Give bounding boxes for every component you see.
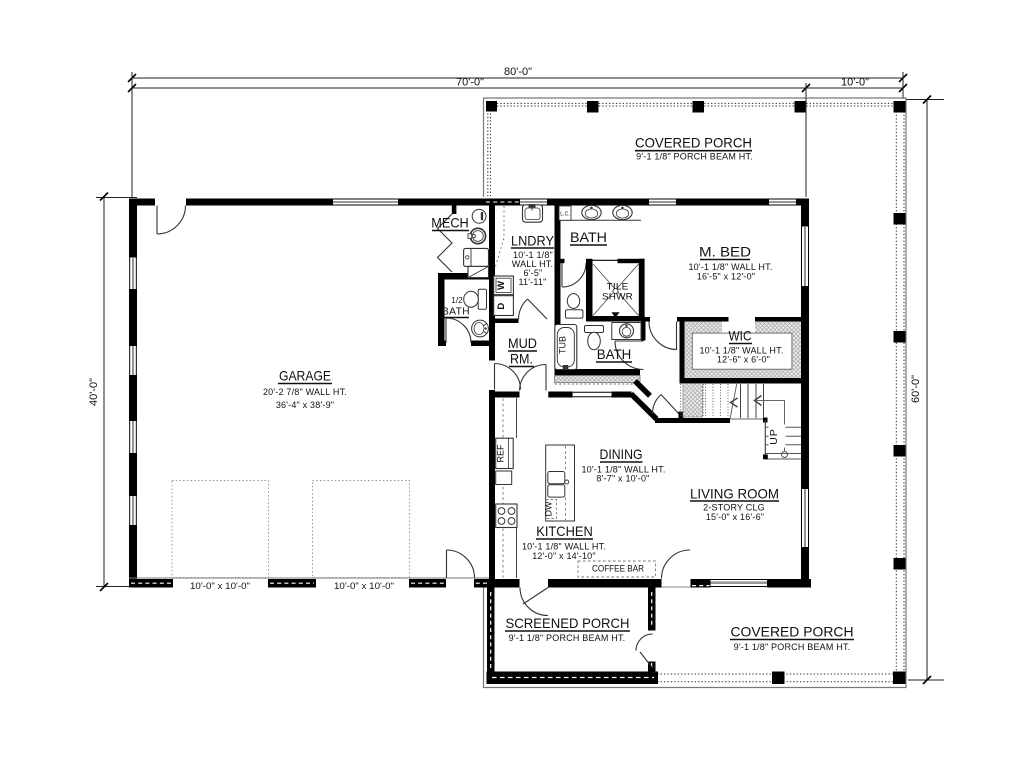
svg-text:TUB: TUB — [558, 336, 568, 354]
svg-text:2-STORY CLG: 2-STORY CLG — [703, 503, 765, 513]
svg-text:WIC: WIC — [729, 328, 752, 344]
svg-text:D: D — [496, 303, 507, 310]
svg-text:DW: DW — [544, 501, 554, 516]
svg-text:M. BED: M. BED — [699, 244, 751, 260]
svg-text:80'-0": 80'-0" — [504, 66, 532, 78]
svg-text:1/2: 1/2 — [451, 296, 463, 305]
svg-text:BATH: BATH — [597, 346, 632, 362]
svg-text:15'-0" x 16'-6": 15'-0" x 16'-6" — [706, 512, 764, 522]
svg-text:MECH: MECH — [431, 215, 469, 231]
svg-text:12'-0" x 14'-10": 12'-0" x 14'-10" — [532, 551, 596, 561]
svg-text:LNDRY: LNDRY — [511, 233, 555, 249]
svg-text:DINING: DINING — [600, 446, 643, 462]
svg-text:12'-6" x 6'-0": 12'-6" x 6'-0" — [717, 355, 770, 365]
svg-text:GARAGE: GARAGE — [279, 368, 331, 384]
svg-text:60'-0": 60'-0" — [910, 375, 922, 403]
svg-text:70'-0": 70'-0" — [456, 77, 484, 89]
svg-text:8'-7" x 10'-0": 8'-7" x 10'-0" — [596, 474, 649, 484]
svg-text:SCREENED PORCH: SCREENED PORCH — [506, 615, 630, 631]
svg-text:20'-2 7/8" WALL HT.: 20'-2 7/8" WALL HT. — [263, 387, 347, 397]
svg-text:10'-1 1/8" WALL HT.: 10'-1 1/8" WALL HT. — [688, 262, 772, 272]
svg-text:9'-1 1/8" PORCH BEAM HT.: 9'-1 1/8" PORCH BEAM HT. — [636, 152, 753, 162]
svg-text:16'-5" x 12'-0": 16'-5" x 12'-0" — [697, 272, 755, 282]
svg-text:COVERED PORCH: COVERED PORCH — [731, 624, 854, 640]
svg-text:SHWR: SHWR — [602, 292, 633, 302]
svg-text:RM.: RM. — [510, 351, 533, 367]
svg-text:W: W — [496, 281, 507, 290]
svg-text:11'-11": 11'-11" — [519, 277, 547, 287]
svg-text:KITCHEN: KITCHEN — [536, 523, 593, 539]
svg-text:10'-0" x 10'-0": 10'-0" x 10'-0" — [190, 581, 250, 592]
svg-text:TILE: TILE — [607, 282, 629, 292]
svg-text:9'-1 1/8" PORCH BEAM HT.: 9'-1 1/8" PORCH BEAM HT. — [734, 642, 851, 652]
svg-text:36'-4" x 38'-9": 36'-4" x 38'-9" — [276, 400, 334, 410]
svg-text:MUD: MUD — [508, 335, 537, 351]
svg-text:REF: REF — [496, 444, 506, 463]
svg-text:9'-1 1/8" PORCH BEAM HT.: 9'-1 1/8" PORCH BEAM HT. — [509, 633, 626, 643]
svg-text:LIVING ROOM: LIVING ROOM — [690, 486, 779, 502]
svg-text:COVERED PORCH: COVERED PORCH — [635, 135, 752, 151]
svg-text:10'-0" x 10'-0": 10'-0" x 10'-0" — [334, 581, 394, 592]
svg-text:10'-1 1/8" WALL HT.: 10'-1 1/8" WALL HT. — [522, 542, 606, 552]
svg-text:BATH: BATH — [570, 229, 607, 245]
svg-text:10'-0": 10'-0" — [841, 77, 869, 89]
svg-text:L.C.: L.C. — [560, 212, 570, 218]
svg-text:BATH: BATH — [442, 307, 470, 318]
svg-text:40'-0": 40'-0" — [88, 378, 100, 406]
svg-text:COFFEE BAR: COFFEE BAR — [592, 564, 644, 574]
svg-text:UP: UP — [768, 428, 780, 445]
